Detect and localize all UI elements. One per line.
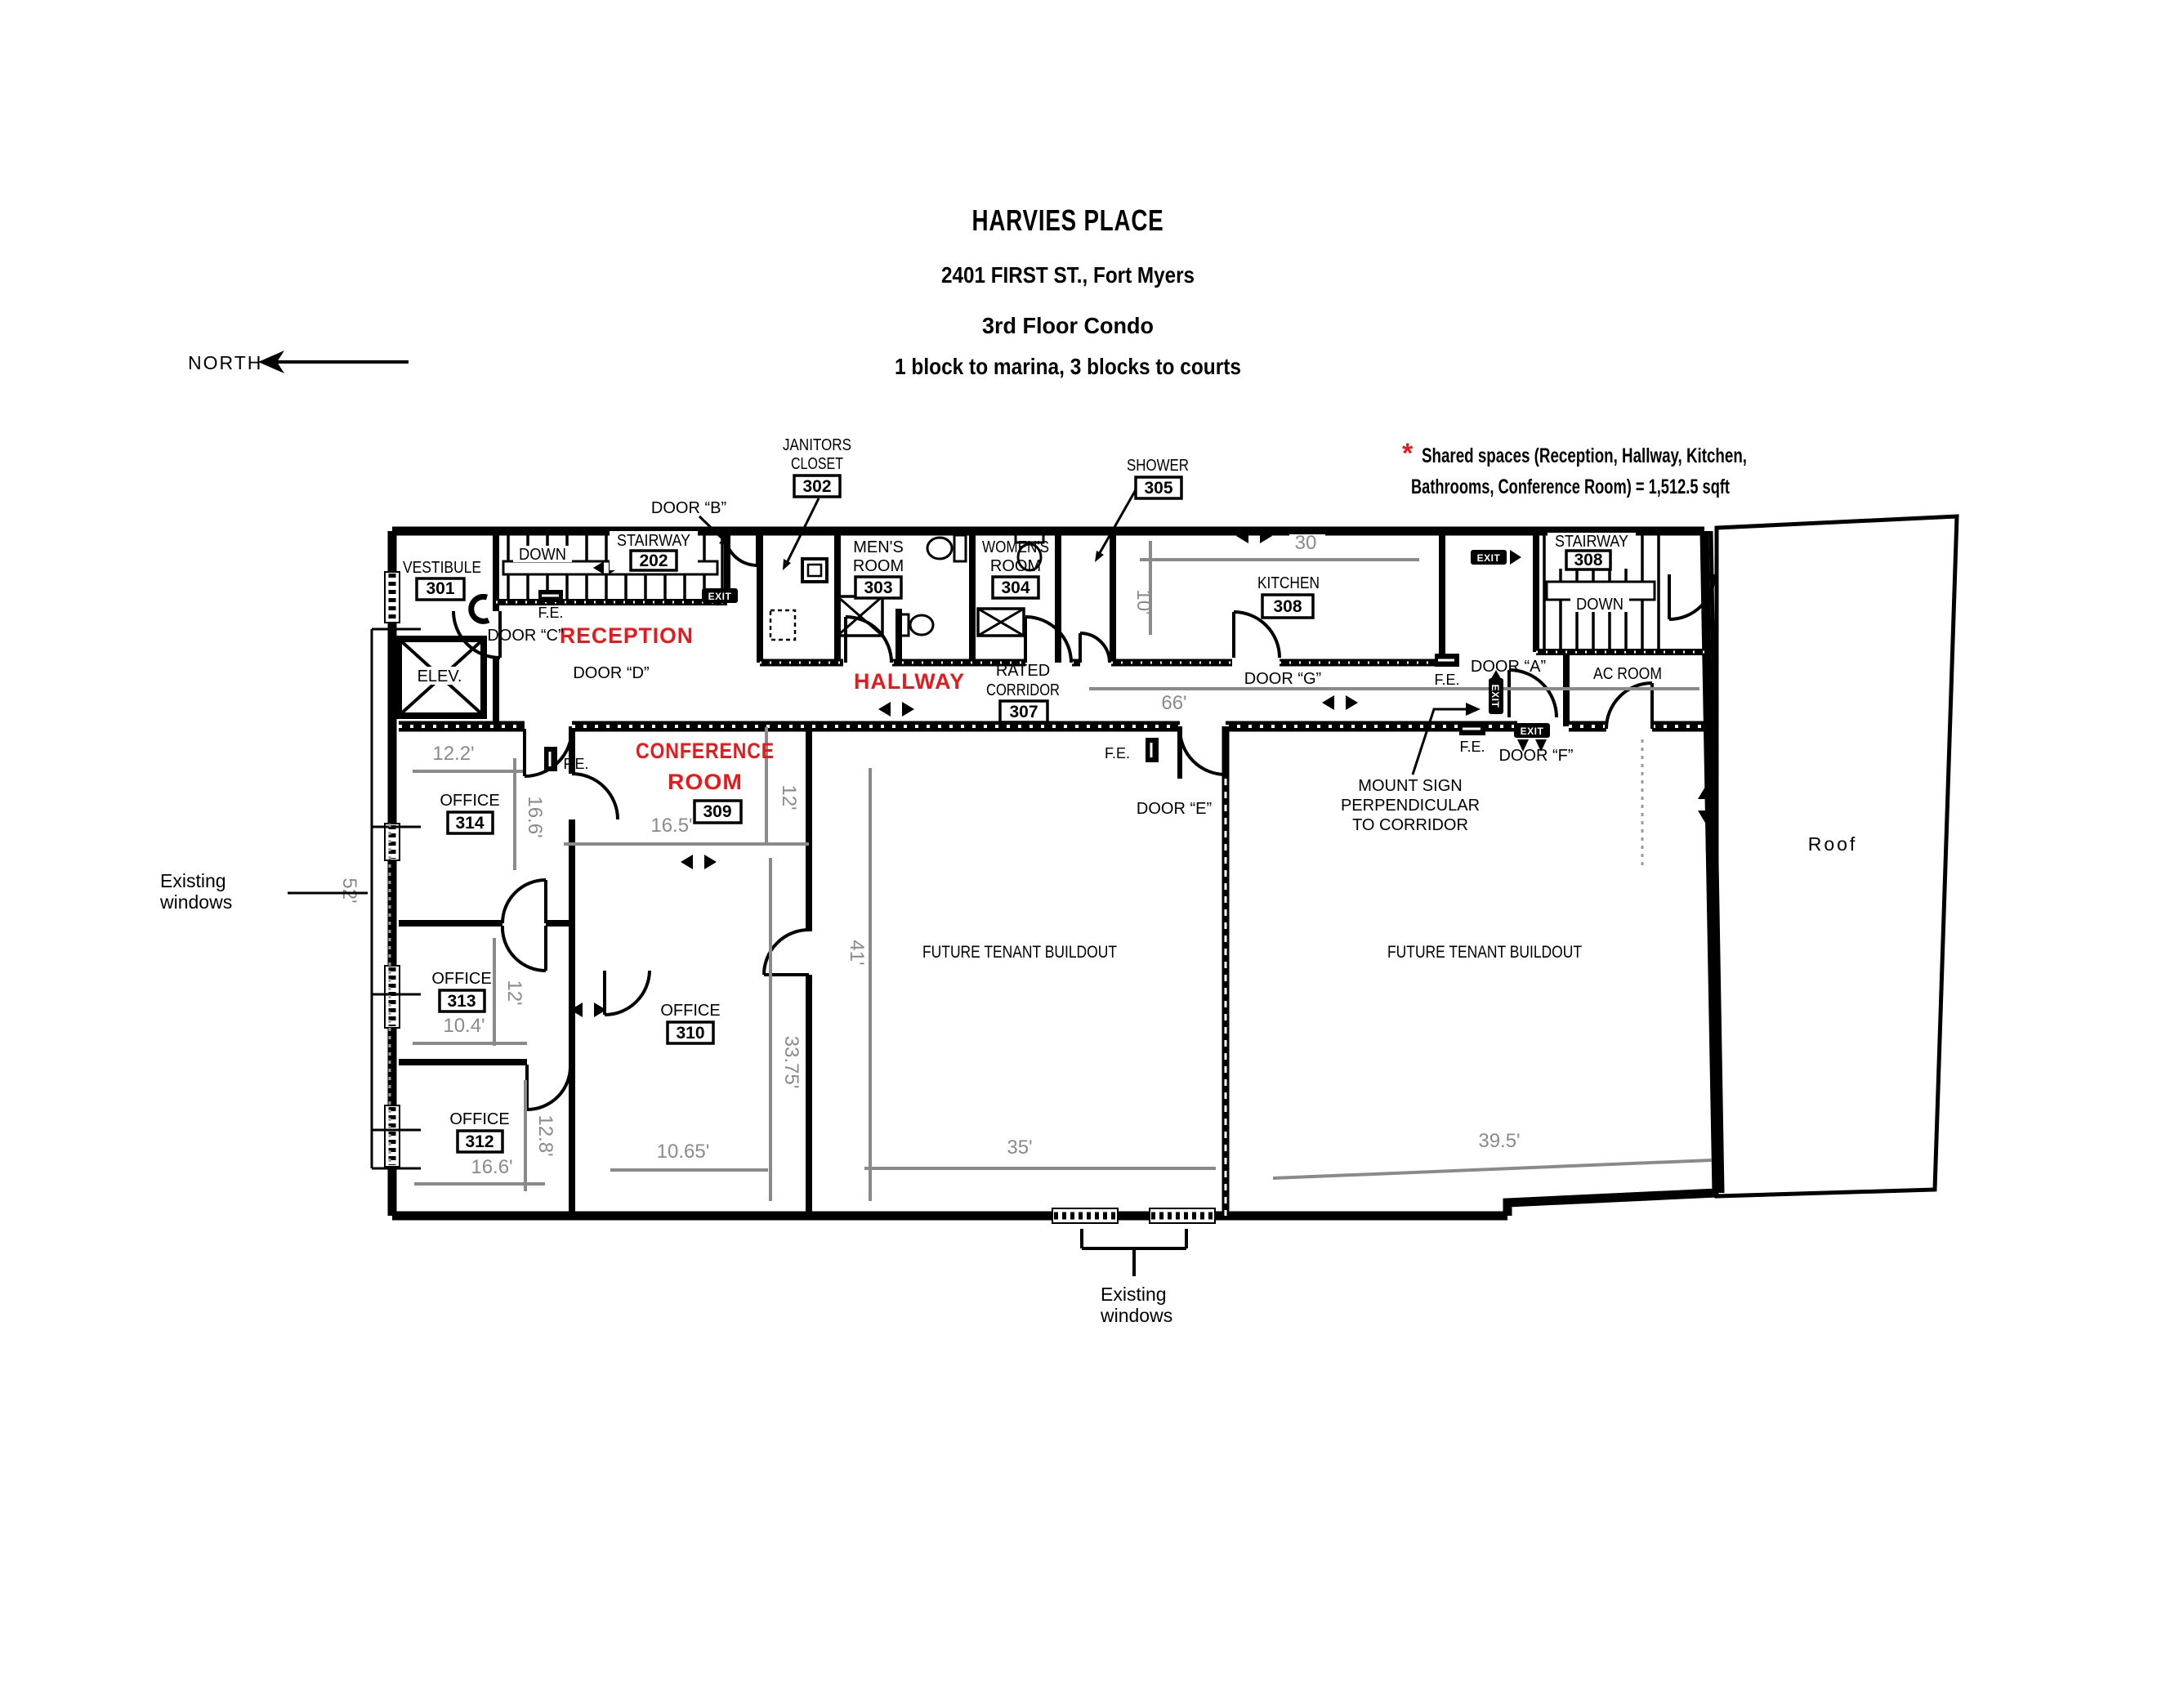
office-310-number: 310: [676, 1024, 704, 1043]
dim-west-wall-span: 52': [338, 877, 360, 903]
existing-windows-west-line-1: Existing: [160, 870, 226, 891]
exit-sign: EXIT: [1477, 552, 1501, 564]
conference-room-label-2: ROOM: [668, 770, 743, 794]
hallway-label: HALLWAY: [854, 669, 965, 694]
existing-windows-south: Existing windows: [1100, 1284, 1172, 1326]
exit-sign: EXIT: [708, 591, 732, 602]
dim-buildout-east-width: 39.5': [1478, 1130, 1520, 1152]
ac-room-label: AC ROOM: [1593, 665, 1662, 683]
door-g-label: DOOR “G”: [1244, 670, 1321, 688]
dim-corridor-length: 66': [1161, 692, 1186, 714]
dim-conference-width: 16.5': [650, 815, 692, 837]
mens-room-label-1: MEN'S: [853, 538, 904, 556]
dim-office-310-depth: 33.75': [780, 1036, 802, 1089]
page-title: HARVIES PLACE: [972, 203, 1164, 237]
floor-line: 3rd Floor Condo: [982, 313, 1154, 338]
reception-label: RECEPTION: [560, 623, 694, 648]
exit-sign: EXIT: [1489, 685, 1501, 708]
door-c-label: DOOR “C”: [487, 627, 563, 645]
title-block: HARVIES PLACE 2401 FIRST ST., Fort Myers…: [895, 203, 1241, 379]
door-pivot-icon: [471, 596, 489, 621]
janitors-closet-number: 302: [802, 477, 831, 496]
womens-room-label-1: WOMEN'S: [982, 538, 1049, 556]
stairway-202-label: STAIRWAY: [617, 532, 690, 550]
north-label: NORTH: [188, 352, 262, 373]
existing-windows-west-line-2: windows: [159, 891, 232, 913]
future-tenant-west-label: FUTURE TENANT BUILDOUT: [922, 943, 1117, 962]
office-314-number: 314: [455, 814, 484, 833]
stairway-308-down: DOWN: [1576, 596, 1623, 614]
future-tenant-east-label: FUTURE TENANT BUILDOUT: [1387, 943, 1582, 962]
rated-corridor-number: 307: [1009, 703, 1038, 721]
exit-signs: EXIT EXIT EXIT EXIT: [702, 550, 1550, 738]
mount-sign-note: MOUNT SIGN PERPENDICULAR TO CORRIDOR: [1341, 777, 1480, 834]
toilet-icon: [900, 614, 909, 636]
office-310-label: OFFICE: [660, 1002, 720, 1020]
dim-conference-depth: 12': [778, 784, 800, 810]
shared-spaces-note: * Shared spaces (Reception, Hallway, Kit…: [1402, 438, 1747, 498]
office-314-label: OFFICE: [440, 792, 499, 810]
stairway-308-label: STAIRWAY: [1555, 533, 1628, 551]
floor-plan-page: HARVIES PLACE 2401 FIRST ST., Fort Myers…: [0, 0, 2184, 1688]
dim-office-314-width: 12.2': [432, 743, 474, 765]
toilet-icon: [954, 535, 966, 561]
door-a-label: DOOR “A”: [1471, 658, 1546, 676]
distance-line: 1 block to marina, 3 blocks to courts: [895, 354, 1241, 379]
note-asterisk: *: [1402, 438, 1414, 469]
janitors-closet-label-2: CLOSET: [791, 455, 843, 473]
note-line-1: Shared spaces (Reception, Hallway, Kitch…: [1422, 444, 1747, 467]
vestibule-label: VESTIBULE: [403, 559, 481, 577]
mount-sign-line-3: TO CORRIDOR: [1352, 816, 1468, 834]
janitor-sink: [802, 559, 827, 582]
vestibule-number: 301: [426, 579, 454, 598]
north-arrow: NORTH: [188, 351, 409, 373]
kitchen-number: 308: [1273, 597, 1302, 616]
door-f-label: DOOR “F”: [1498, 747, 1573, 765]
rated-corridor-label-2: CORRIDOR: [986, 681, 1060, 699]
stairway-202-number: 202: [639, 552, 668, 570]
dim-office-312-width: 16.6': [471, 1156, 512, 1178]
office-312-label: OFFICE: [449, 1110, 509, 1128]
elevator-label: ELEV.: [418, 668, 462, 685]
dim-office-314-depth: 16.6': [524, 796, 546, 837]
door-b-label: DOOR “B”: [651, 499, 726, 517]
office-313-label: OFFICE: [431, 970, 491, 988]
stairway-308-number: 308: [1574, 551, 1602, 569]
dim-office-313-width: 10.4': [443, 1015, 485, 1037]
existing-windows-west: Existing windows: [159, 870, 232, 913]
dim-office-313-depth: 12': [503, 980, 525, 1005]
mens-room-label-2: ROOM: [853, 557, 904, 575]
dim-buildout-west-depth: 41': [846, 940, 868, 965]
rated-corridor-label-1: RATED: [996, 662, 1050, 680]
mount-sign-line-1: MOUNT SIGN: [1358, 777, 1462, 795]
note-line-2: Bathrooms, Conference Room) = 1,512.5 sq…: [1411, 476, 1730, 498]
door-e-label: DOOR “E”: [1137, 800, 1212, 818]
door-d-label: DOOR “D”: [573, 664, 649, 682]
existing-windows-south-line-2: windows: [1100, 1305, 1172, 1326]
floor-plan-drawing: HARVIES PLACE 2401 FIRST ST., Fort Myers…: [0, 0, 2184, 1688]
shower-number: 305: [1144, 479, 1172, 498]
fe-label: F.E.: [1459, 739, 1485, 755]
dim-kitchen-depth: 10': [1132, 589, 1155, 614]
stairway-202-down: DOWN: [519, 546, 566, 564]
office-313-number: 313: [447, 992, 476, 1011]
room-labels: VESTIBULE 301 STAIRWAY 202 DOWN JANITORS…: [403, 436, 1662, 1152]
roof-area: Roof: [1711, 516, 1957, 1196]
mens-room-number: 303: [864, 578, 892, 597]
dim-buildout-west-width: 35': [1007, 1136, 1032, 1159]
conference-room-label-1: CONFERENCE: [636, 739, 775, 763]
mop-sink: [770, 610, 795, 640]
elevator-shaft: [399, 596, 489, 716]
womens-room-number: 304: [1001, 578, 1029, 597]
womens-room-label-2: ROOM: [990, 557, 1041, 575]
dim-office-312-depth: 12.8': [534, 1114, 556, 1156]
dim-kitchen-width: 30: [1295, 532, 1317, 554]
fe-label: F.E.: [1105, 745, 1130, 761]
door-swing-arcs: [453, 533, 1714, 1110]
existing-windows-south-line-1: Existing: [1101, 1284, 1167, 1305]
kitchen-label: KITCHEN: [1257, 574, 1320, 592]
shower-label: SHOWER: [1127, 457, 1189, 475]
janitors-closet-label-1: JANITORS: [783, 436, 851, 454]
dim-office-310-width: 10.65': [657, 1141, 710, 1163]
exit-sign: EXIT: [1521, 726, 1544, 737]
conference-number: 309: [703, 802, 731, 821]
fe-label: F.E.: [538, 605, 563, 621]
roof-label: Roof: [1808, 833, 1858, 855]
office-312-number: 312: [465, 1132, 494, 1151]
fe-label: F.E.: [1434, 672, 1459, 688]
address-line: 2401 FIRST ST., Fort Myers: [941, 262, 1195, 288]
mount-sign-line-2: PERPENDICULAR: [1341, 797, 1480, 815]
fe-label: F.E.: [563, 756, 588, 772]
